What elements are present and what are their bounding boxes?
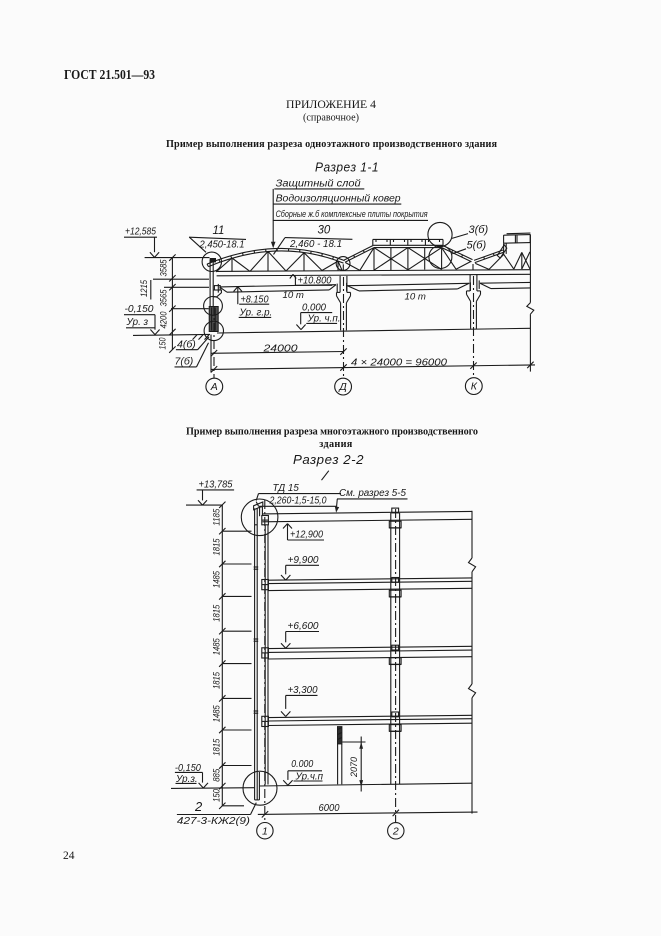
svg-text:4 × 24000 = 96000: 4 × 24000 = 96000	[351, 357, 448, 368]
svg-text:+12,900: +12,900	[290, 529, 324, 540]
svg-text:Ур. з: Ур. з	[126, 317, 149, 328]
svg-text:3(б): 3(б)	[469, 224, 489, 236]
svg-text:0.000: 0.000	[291, 759, 313, 770]
svg-text:1215: 1215	[139, 279, 149, 297]
svg-text:24000: 24000	[262, 343, 298, 354]
svg-text:ПРИЛОЖЕНИЕ 4: ПРИЛОЖЕНИЕ 4	[286, 97, 376, 111]
svg-text:10 т: 10 т	[283, 290, 304, 301]
svg-text:7(б): 7(б)	[175, 356, 194, 368]
svg-text:Разрез 1-1: Разрез 1-1	[315, 160, 379, 175]
svg-text:1815: 1815	[212, 671, 222, 689]
svg-text:2070: 2070	[349, 756, 360, 778]
svg-text:К: К	[471, 381, 478, 393]
svg-text:Пример выполнения разреза одно: Пример выполнения разреза одноэтажного п…	[166, 139, 497, 150]
svg-text:Д: Д	[338, 381, 347, 393]
svg-text:4(б): 4(б)	[177, 339, 196, 351]
svg-text:Защитный слой: Защитный слой	[276, 178, 361, 189]
svg-text:(справочное): (справочное)	[303, 113, 359, 124]
svg-text:Водоизоляционный ковер: Водоизоляционный ковер	[276, 194, 401, 205]
svg-text:1185: 1185	[212, 508, 222, 526]
svg-text:+12,585: +12,585	[125, 227, 156, 238]
svg-text:+10.800: +10.800	[298, 276, 333, 287]
svg-text:10 т: 10 т	[405, 292, 426, 303]
svg-text:1485: 1485	[212, 637, 222, 655]
svg-text:Пример выполнения разреза мног: Пример выполнения разреза многоэтажного …	[186, 427, 478, 438]
svg-text:здания: здания	[319, 439, 352, 450]
svg-text:Разрез 2-2: Разрез 2-2	[293, 453, 364, 467]
svg-text:Сборные ж.б комплексные плиты: Сборные ж.б комплексные плиты покрытия	[276, 209, 428, 220]
svg-text:См. разрез 5-5: См. разрез 5-5	[339, 488, 407, 499]
svg-text:1815: 1815	[212, 738, 222, 756]
svg-text:3565: 3565	[159, 289, 169, 307]
svg-text:1485: 1485	[212, 570, 222, 588]
svg-text:150: 150	[158, 338, 168, 350]
svg-text:150: 150	[212, 789, 222, 802]
svg-text:+3,300: +3,300	[288, 685, 319, 696]
svg-text:1815: 1815	[212, 604, 222, 622]
svg-text:3585: 3585	[159, 259, 169, 277]
svg-text:427-3-КЖ2(9): 427-3-КЖ2(9)	[177, 816, 250, 827]
svg-text:А: А	[210, 381, 218, 393]
svg-text:+8.150: +8.150	[241, 295, 269, 306]
svg-text:1485: 1485	[212, 704, 222, 722]
svg-text:2,260-1,5-15,0: 2,260-1,5-15,0	[269, 496, 327, 507]
svg-text:+6,600: +6,600	[288, 621, 320, 632]
svg-text:24: 24	[63, 850, 75, 862]
svg-text:1: 1	[262, 825, 268, 837]
svg-text:5(б): 5(б)	[467, 240, 487, 252]
svg-text:11: 11	[213, 225, 225, 237]
svg-text:+9,900: +9,900	[288, 555, 320, 566]
svg-text:885: 885	[212, 768, 222, 782]
svg-text:6000: 6000	[319, 803, 341, 814]
svg-text:2,460 - 18.1: 2,460 - 18.1	[289, 239, 342, 250]
svg-text:-0,150: -0,150	[125, 304, 155, 315]
svg-text:ГОСТ 21.501—93: ГОСТ 21.501—93	[64, 67, 155, 82]
svg-text:4200: 4200	[159, 312, 169, 329]
svg-text:2: 2	[194, 799, 203, 814]
svg-text:2: 2	[392, 825, 399, 837]
svg-text:30: 30	[318, 225, 331, 237]
svg-text:1815: 1815	[212, 538, 222, 556]
svg-text:2,450-18.1: 2,450-18.1	[199, 239, 245, 250]
svg-text:0,000: 0,000	[302, 303, 327, 314]
svg-text:+13,785: +13,785	[199, 480, 234, 491]
svg-text:ТД 15: ТД 15	[273, 483, 300, 494]
